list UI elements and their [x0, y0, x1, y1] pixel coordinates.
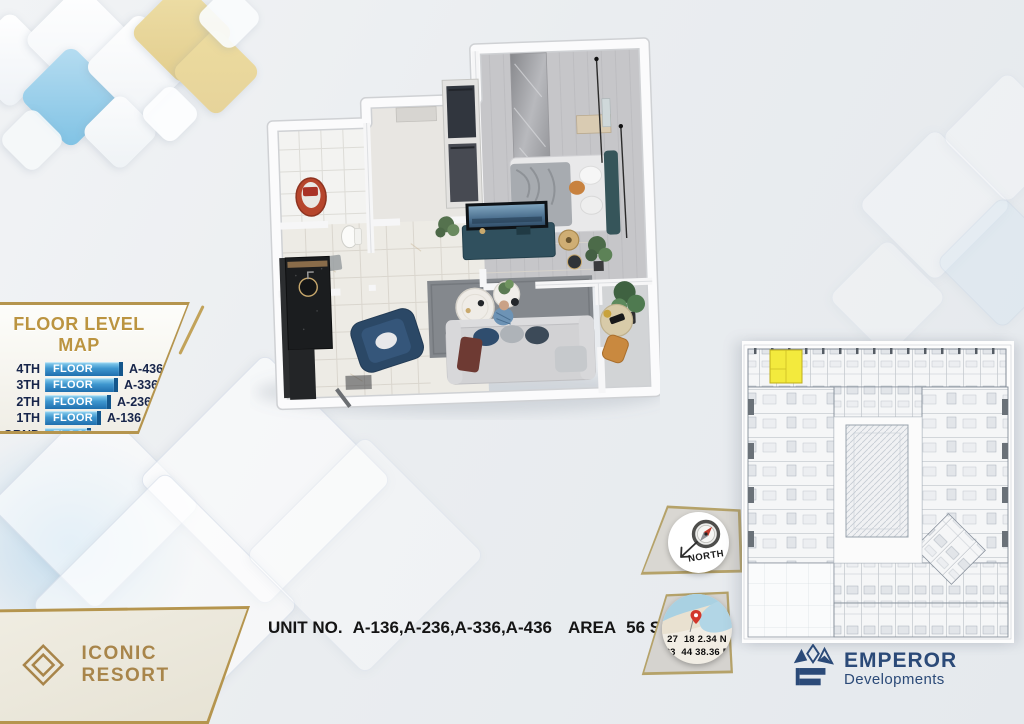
area-label: AREA [568, 618, 616, 638]
diamond-logo-icon [17, 638, 69, 692]
floor-map-title: FLOOR LEVEL MAP [0, 314, 195, 356]
floor-row: 1TH FLOOR A-136 [0, 411, 195, 426]
floor-bar: FLOOR [45, 411, 101, 425]
developer-name: EMPEROR [844, 650, 957, 672]
building-site-plan [742, 341, 1014, 643]
brand-panel: ICONIC RESORT [0, 606, 250, 724]
developer-logo: EMPEROR Developments [790, 644, 957, 694]
location-pin-icon [690, 610, 702, 624]
crown-icon [790, 644, 836, 694]
compass-badge: NORTH [668, 512, 729, 573]
floor-bar: FLOOR [45, 378, 118, 392]
floor-row: 3TH FLOOR A-336 [0, 378, 195, 393]
developer-subtitle: Developments [844, 672, 957, 688]
floor-unit-label: A-136 [107, 411, 141, 425]
floor-unit-label: A-436 [129, 362, 163, 376]
floor-bar: FLOOR [45, 395, 111, 409]
floor-level-label: 1TH [0, 411, 45, 425]
floor-level-label: 4TH [0, 362, 45, 376]
floor-level-map-panel: FLOOR LEVEL MAP 4TH FLOOR A-436 3TH FLOO… [0, 302, 198, 434]
unit-number-value: A-136,A-236,A-336,A-436 [353, 618, 552, 638]
floor-row: 4TH FLOOR A-436 [0, 361, 195, 376]
compass-icon [668, 512, 729, 573]
unit-number-label: UNIT NO. [268, 618, 343, 638]
floor-level-label: 2TH [0, 395, 45, 409]
apartment-3d-render [250, 20, 660, 420]
brand-name: ICONIC RESORT [81, 643, 247, 687]
coordinates-line1: 27 18 2.34 N [662, 634, 732, 645]
unit-info: UNIT NO. A-136,A-236,A-336,A-436 AREA 56… [268, 618, 689, 638]
floor-unit-label: A-236 [117, 395, 151, 409]
floor-level-label: 3TH [0, 378, 45, 392]
location-map-badge: 27 18 2.34 N 33 44 38.36 E [662, 594, 732, 664]
floor-row: 2TH FLOOR A-236 [0, 394, 195, 409]
floor-bar: FLOOR [45, 362, 123, 376]
brochure-page: { "floor_map": { "title": "FLOOR LEVEL M… [0, 0, 1024, 724]
floor-unit-label: A-336 [124, 378, 158, 392]
coordinates-line2: 33 44 38.36 E [662, 647, 732, 658]
